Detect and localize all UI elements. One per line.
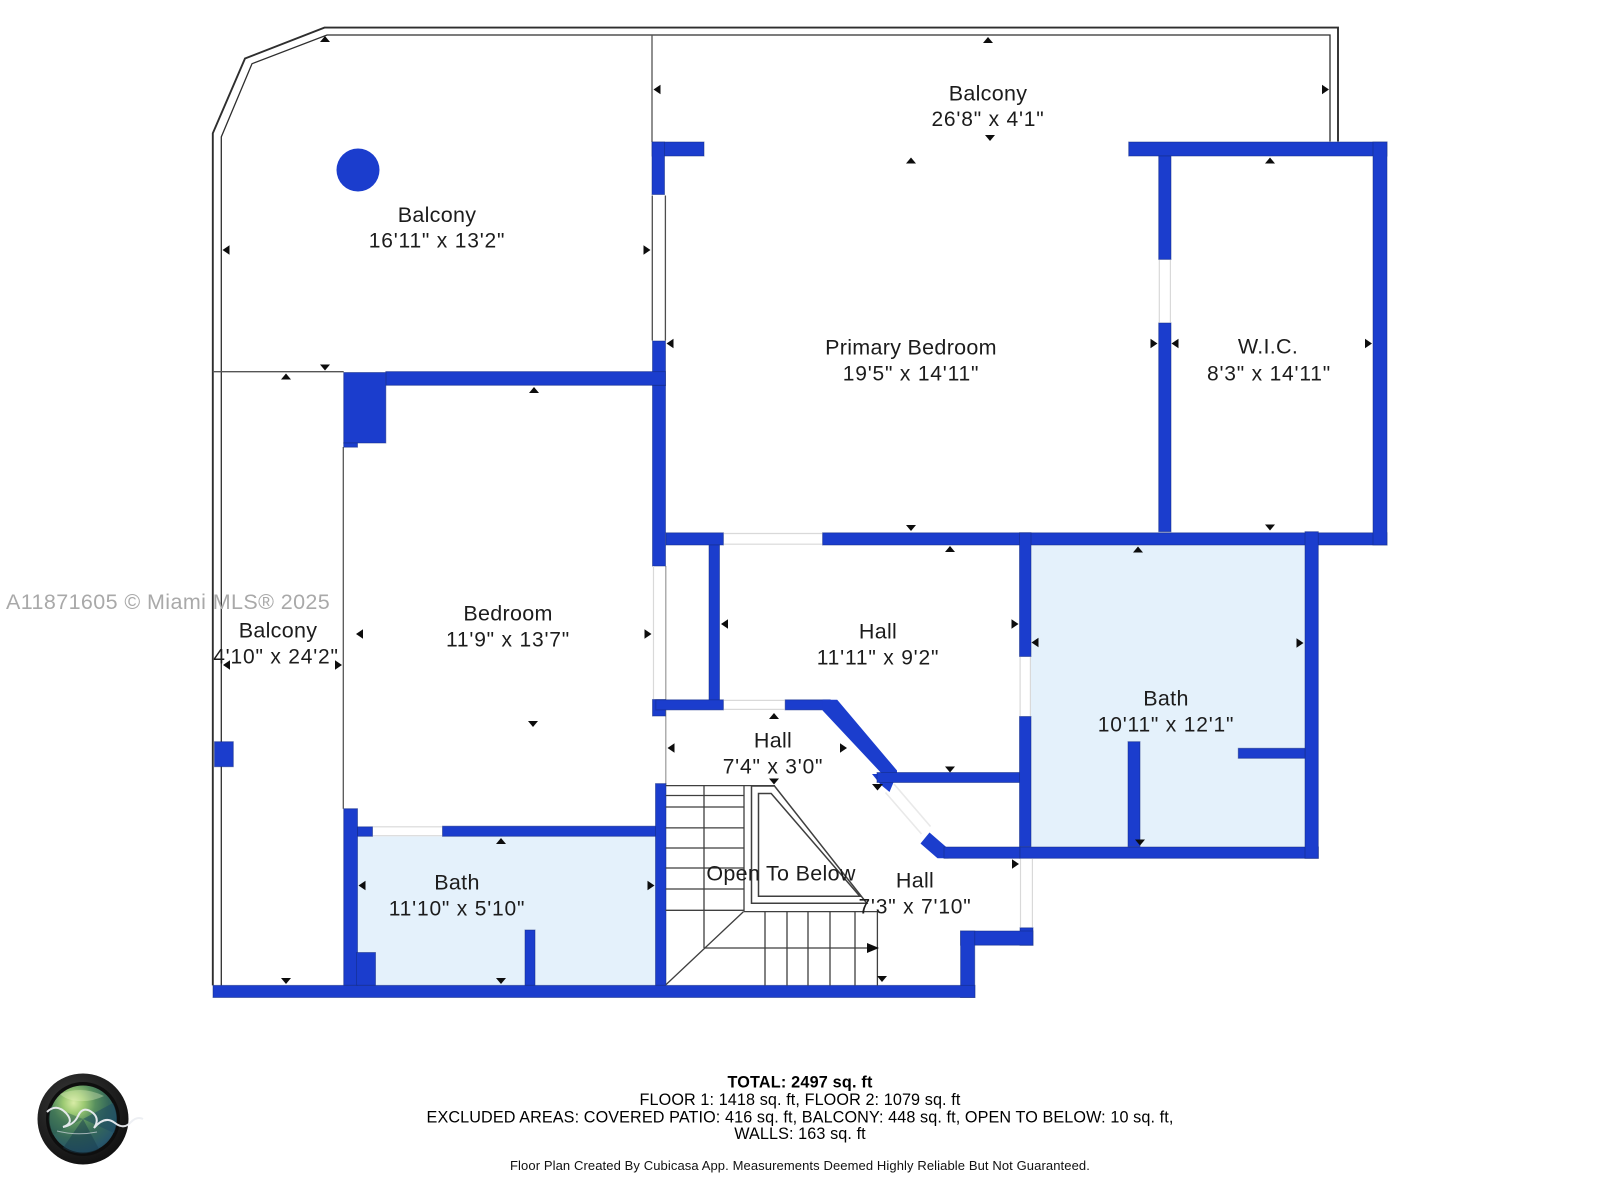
svg-text:Bath: Bath [434, 871, 479, 895]
svg-text:WALLS: 163 sq. ft: WALLS: 163 sq. ft [734, 1125, 866, 1143]
svg-text:Hall: Hall [859, 620, 897, 644]
svg-text:7'3" x 7'10": 7'3" x 7'10" [858, 896, 971, 919]
svg-text:Bedroom: Bedroom [463, 602, 552, 626]
svg-text:Open To Below: Open To Below [706, 862, 855, 886]
svg-text:FLOOR 1: 1418 sq. ft, FLOOR 2:: FLOOR 1: 1418 sq. ft, FLOOR 2: 1079 sq. … [640, 1091, 961, 1109]
svg-text:EXCLUDED AREAS: COVERED PATIO:: EXCLUDED AREAS: COVERED PATIO: 416 sq. f… [427, 1109, 1174, 1127]
svg-text:7'4" x 3'0": 7'4" x 3'0" [723, 756, 824, 779]
svg-text:11'9" x 13'7": 11'9" x 13'7" [446, 629, 570, 652]
svg-text:TOTAL: 2497 sq. ft: TOTAL: 2497 sq. ft [727, 1074, 873, 1092]
svg-text:10'11" x 12'1": 10'11" x 12'1" [1098, 714, 1235, 737]
svg-text:Balcony: Balcony [398, 203, 477, 227]
svg-text:Balcony: Balcony [949, 82, 1028, 106]
svg-text:Hall: Hall [896, 869, 934, 893]
svg-text:Balcony: Balcony [239, 619, 318, 643]
svg-text:19'5" x 14'11": 19'5" x 14'11" [843, 363, 980, 386]
svg-text:W.I.C.: W.I.C. [1238, 335, 1298, 359]
svg-text:Primary Bedroom: Primary Bedroom [825, 336, 997, 360]
svg-text:4'10" x 24'2": 4'10" x 24'2" [213, 646, 339, 669]
svg-text:Floor Plan Created By Cubicasa: Floor Plan Created By Cubicasa App. Meas… [510, 1158, 1090, 1173]
svg-text:26'8" x 4'1": 26'8" x 4'1" [931, 108, 1044, 131]
svg-text:11'10" x 5'10": 11'10" x 5'10" [389, 898, 526, 921]
svg-text:8'3" x 14'11": 8'3" x 14'11" [1207, 363, 1331, 386]
svg-text:11'11" x 9'2": 11'11" x 9'2" [817, 647, 939, 670]
svg-text:Hall: Hall [754, 729, 792, 753]
svg-text:Bath: Bath [1143, 687, 1188, 711]
svg-text:A11871605 © Miami MLS® 2025: A11871605 © Miami MLS® 2025 [6, 590, 330, 614]
svg-text:16'11" x 13'2": 16'11" x 13'2" [369, 230, 506, 253]
